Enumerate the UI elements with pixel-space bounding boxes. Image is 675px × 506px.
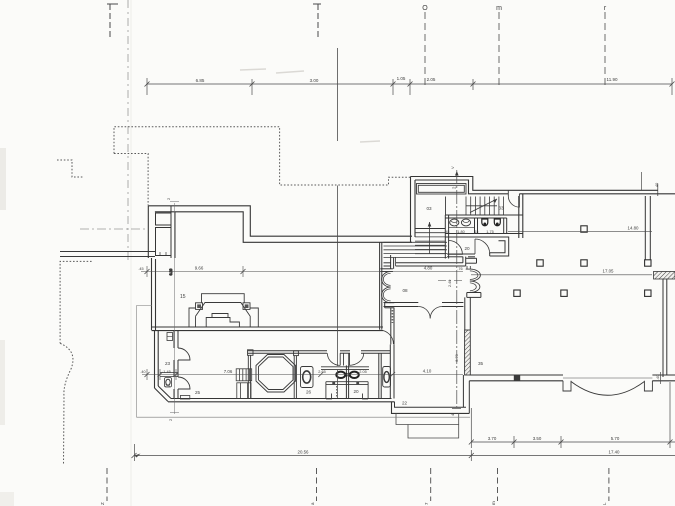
svg-text:4.10: 4.10 [423, 369, 432, 374]
svg-text:2.40: 2.40 [448, 280, 452, 287]
svg-text:15: 15 [180, 294, 186, 300]
svg-text:1.05: 1.05 [397, 76, 406, 81]
svg-text:08: 08 [402, 288, 408, 293]
svg-text:.45: .45 [138, 267, 143, 271]
svg-text:6.85: 6.85 [196, 78, 205, 83]
svg-text:24: 24 [165, 383, 171, 388]
svg-text:11.90: 11.90 [607, 77, 618, 82]
svg-text:.40: .40 [655, 183, 659, 188]
svg-text:2.65: 2.65 [318, 370, 325, 374]
svg-text:25: 25 [195, 390, 201, 395]
svg-text:4.80: 4.80 [424, 266, 433, 271]
svg-text:14.80: 14.80 [628, 226, 640, 231]
svg-text:1.45: 1.45 [163, 370, 170, 374]
svg-text:17.40: 17.40 [609, 450, 621, 455]
svg-text:6.10: 6.10 [169, 269, 173, 276]
svg-text:.15: .15 [474, 230, 479, 234]
svg-text:20.56: 20.56 [298, 450, 310, 455]
svg-text:1.75: 1.75 [486, 230, 493, 234]
svg-text:7.06: 7.06 [224, 369, 233, 374]
svg-text:2.05: 2.05 [359, 370, 366, 374]
svg-text:17.05: 17.05 [603, 269, 615, 274]
svg-text:35: 35 [478, 361, 484, 366]
svg-text:5.70: 5.70 [611, 436, 620, 441]
svg-text:3.50: 3.50 [533, 436, 542, 441]
svg-text:m: m [496, 5, 502, 12]
svg-text:Z: Z [100, 502, 105, 505]
svg-text:1.80: 1.80 [457, 230, 464, 234]
svg-text:23: 23 [165, 361, 171, 366]
svg-text:3.70: 3.70 [488, 436, 497, 441]
svg-text:m: m [491, 501, 496, 505]
svg-text:3.00: 3.00 [310, 78, 319, 83]
svg-text:2.05: 2.05 [427, 77, 436, 82]
svg-text:9.66: 9.66 [195, 266, 204, 271]
svg-text:O: O [422, 5, 428, 12]
svg-text:20: 20 [465, 246, 471, 251]
svg-text:V: V [450, 166, 455, 169]
svg-text:.76: .76 [457, 267, 462, 271]
svg-text:20: 20 [353, 389, 359, 394]
svg-text:33: 33 [499, 206, 505, 211]
svg-text:.45: .45 [445, 230, 450, 234]
svg-text:03: 03 [427, 206, 433, 211]
svg-text:26: 26 [306, 390, 312, 395]
svg-text:22: 22 [402, 401, 408, 406]
svg-text:.40: .40 [656, 375, 660, 380]
svg-text:.40: .40 [140, 370, 145, 374]
